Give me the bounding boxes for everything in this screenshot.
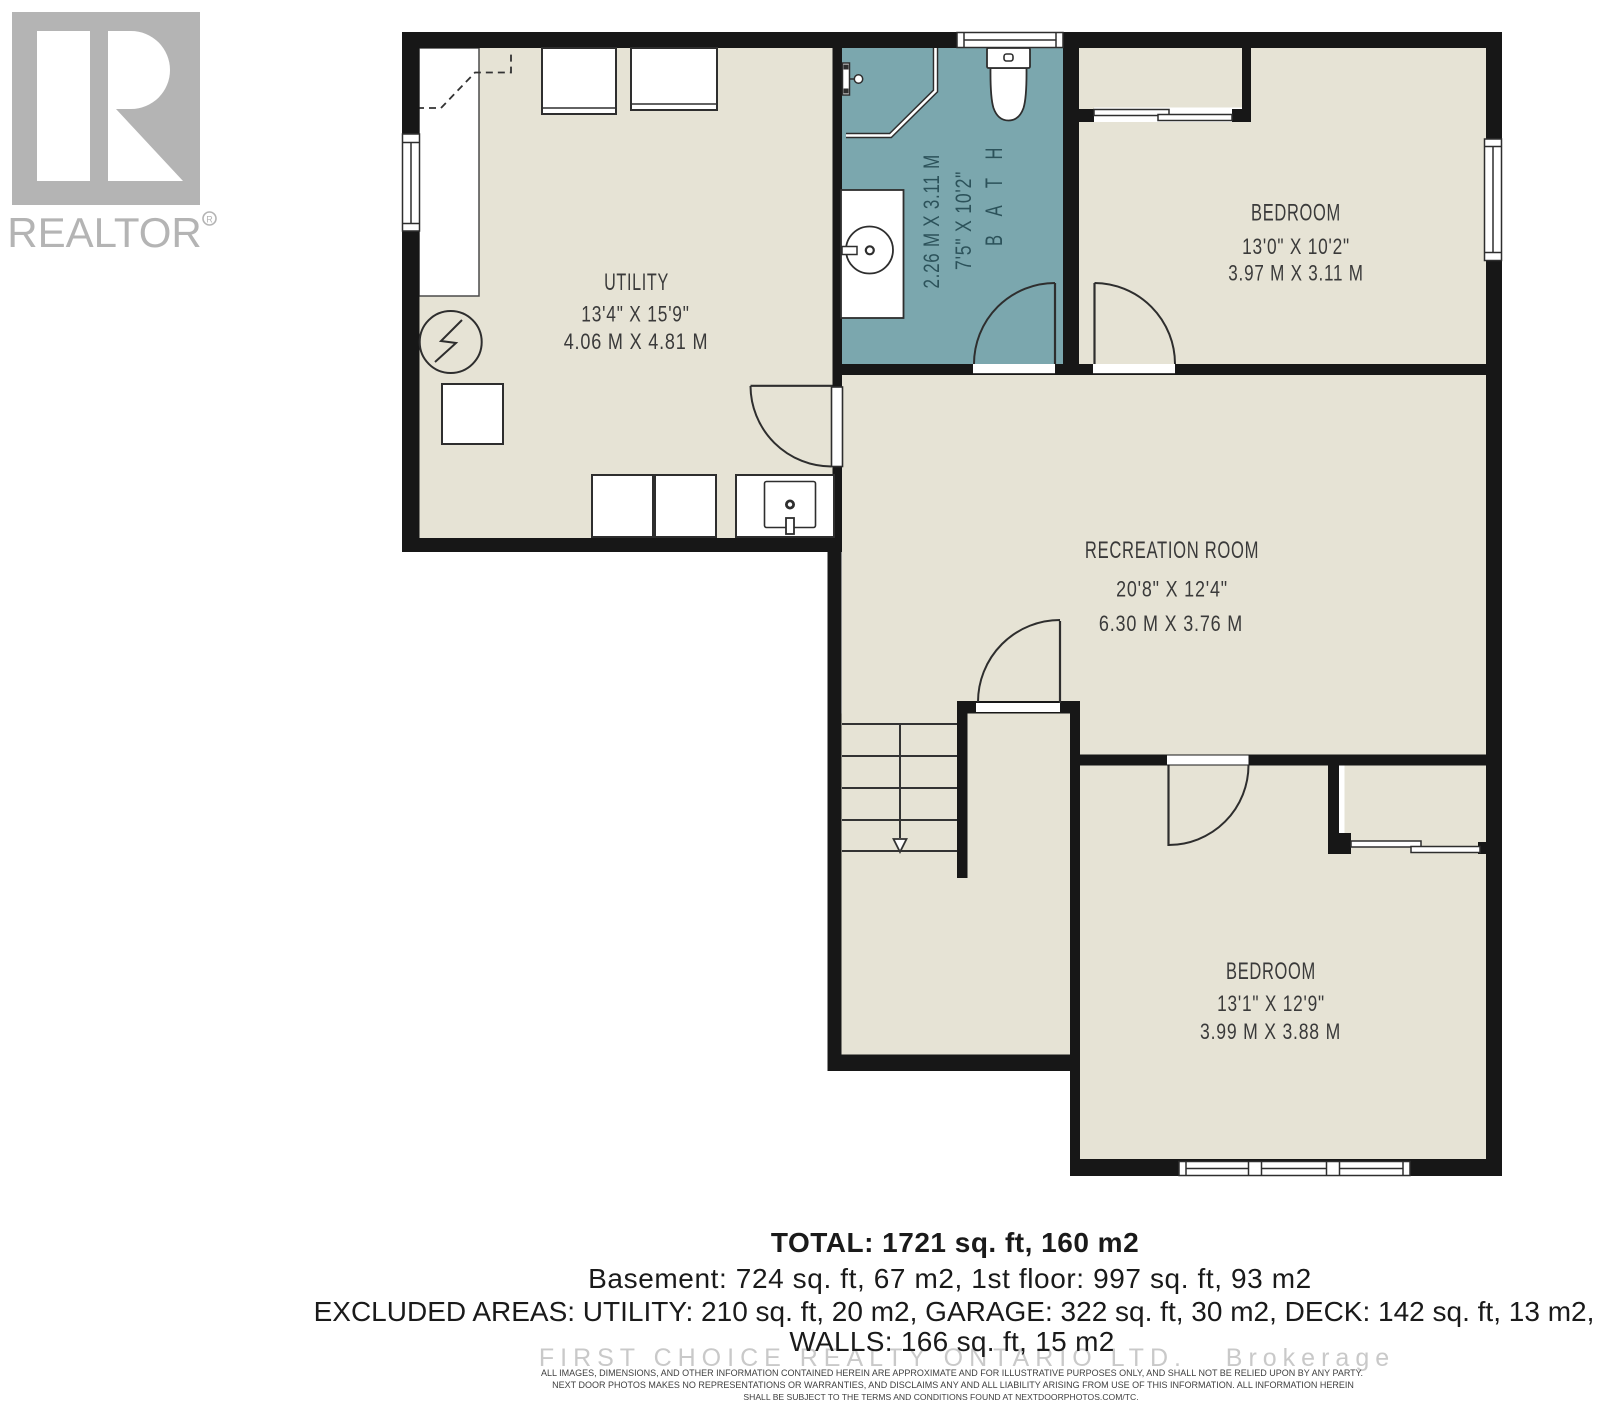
svg-text:TOTAL: 1721 sq. ft, 160 m2: TOTAL: 1721 sq. ft, 160 m2 xyxy=(771,1227,1139,1258)
svg-text:Basement: 724 sq. ft, 67 m2, 1: Basement: 724 sq. ft, 67 m2, 1st floor: … xyxy=(588,1263,1312,1294)
svg-text:7'5" X 10'2": 7'5" X 10'2" xyxy=(952,171,976,270)
svg-text:RECREATION ROOM: RECREATION ROOM xyxy=(1085,537,1259,564)
svg-text:REALTOR: REALTOR xyxy=(7,209,202,256)
svg-text:NEXT DOOR PHOTOS MAKES NO REPR: NEXT DOOR PHOTOS MAKES NO REPRESENTATION… xyxy=(552,1380,1354,1390)
svg-text:EXCLUDED AREAS: UTILITY: 210 s: EXCLUDED AREAS: UTILITY: 210 sq. ft, 20 … xyxy=(314,1296,1595,1327)
svg-text:3.97 M X 3.11 M: 3.97 M X 3.11 M xyxy=(1228,261,1363,286)
svg-text:UTILITY: UTILITY xyxy=(604,269,669,296)
svg-text:BEDROOM: BEDROOM xyxy=(1251,200,1341,227)
svg-text:BATH: BATH xyxy=(981,129,1008,246)
svg-text:ALL IMAGES, DIMENSIONS, AND OT: ALL IMAGES, DIMENSIONS, AND OTHER INFORM… xyxy=(541,1368,1363,1378)
svg-text:R: R xyxy=(206,215,213,225)
svg-text:13'1" X 12'9": 13'1" X 12'9" xyxy=(1217,992,1325,1016)
svg-text:13'0" X 10'2": 13'0" X 10'2" xyxy=(1242,235,1350,259)
svg-text:2.26 M X 3.11 M: 2.26 M X 3.11 M xyxy=(920,154,945,289)
svg-text:13'4" X 15'9": 13'4" X 15'9" xyxy=(581,303,689,327)
svg-text:SHALL BE SUBJECT TO THE TERMS: SHALL BE SUBJECT TO THE TERMS AND CONDIT… xyxy=(743,1392,1138,1402)
svg-text:20'8" X 12'4": 20'8" X 12'4" xyxy=(1116,578,1228,602)
svg-text:WALLS: 166 sq. ft, 15 m2: WALLS: 166 sq. ft, 15 m2 xyxy=(789,1326,1114,1357)
svg-text:3.99 M X 3.88 M: 3.99 M X 3.88 M xyxy=(1200,1020,1341,1044)
svg-text:BEDROOM: BEDROOM xyxy=(1226,958,1316,985)
svg-text:4.06 M X 4.81 M: 4.06 M X 4.81 M xyxy=(564,330,709,354)
svg-text:6.30 M X 3.76 M: 6.30 M X 3.76 M xyxy=(1099,612,1243,636)
